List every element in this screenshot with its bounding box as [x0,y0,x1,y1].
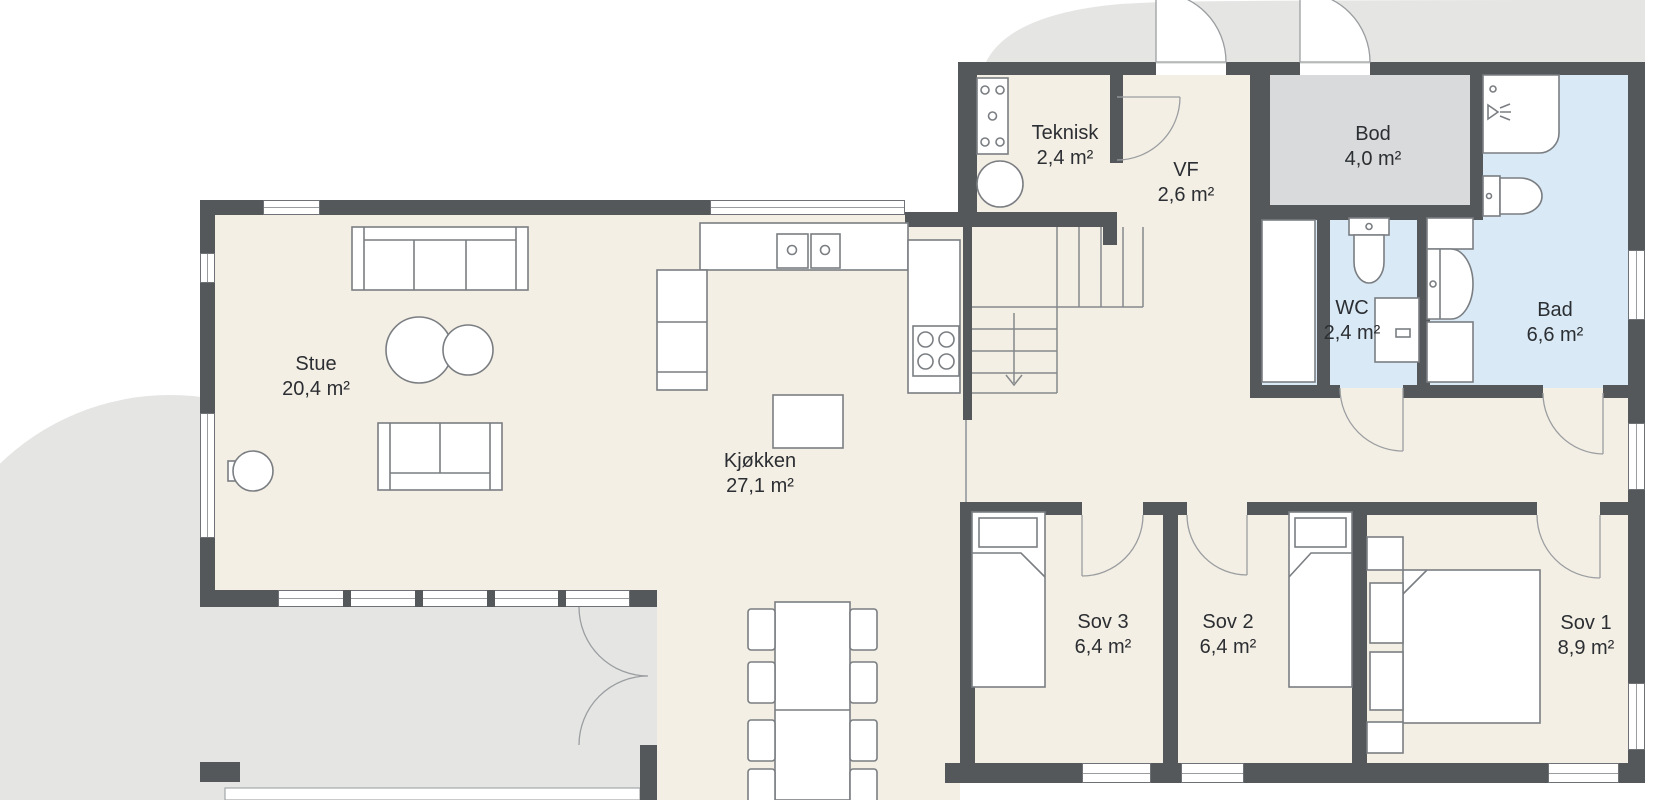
wall [1600,502,1628,515]
wall [640,745,657,800]
window-mullion [343,590,351,607]
window [1082,763,1151,783]
window [278,590,630,607]
room-area: 27,1 m² [726,474,794,499]
window [1548,763,1619,783]
stair-wall [963,212,972,420]
window [263,200,320,215]
wall [1250,385,1340,398]
terrace-pillar [200,762,240,782]
room-area: 2,4 m² [1324,321,1381,346]
wall [958,62,1156,75]
room-label-sov2: Sov 2 6,4 m² [1200,610,1257,660]
room-name: Sov 2 [1202,610,1253,635]
room-area: 8,9 m² [1558,636,1615,661]
bad-floor-lower [1417,210,1628,388]
wall [905,212,1117,227]
room-area: 6,4 m² [1075,635,1132,660]
wall [1110,75,1123,163]
dining-floor [657,590,960,800]
window [1628,250,1645,320]
room-area: 2,4 m² [1037,146,1094,171]
wall [1163,515,1178,763]
window [1628,423,1645,490]
room-area: 4,0 m² [1345,147,1402,172]
wall [960,502,1082,515]
stue-kjokken-floor [215,215,960,590]
room-name: Bad [1537,298,1573,323]
room-name: WC [1335,296,1368,321]
window-mullion [415,590,423,607]
window [1181,763,1244,783]
french-doors-arc [579,607,648,745]
room-area: 6,4 m² [1200,635,1257,660]
window [200,413,215,538]
room-label-bad: Bad 6,6 m² [1527,298,1584,348]
wall [960,515,975,763]
wall [1417,215,1430,388]
window [1628,683,1645,750]
room-label-teknisk: Teknisk 2,4 m² [1032,121,1099,171]
room-label-bod: Bod 4,0 m² [1345,122,1402,172]
room-label-sov1: Sov 1 8,9 m² [1558,611,1615,661]
room-area: 6,6 m² [1527,323,1584,348]
wall [1370,62,1645,75]
room-label-stue: Stue 20,4 m² [282,352,350,402]
wall [1352,515,1367,763]
room-name: Teknisk [1032,121,1099,146]
room-label-vf: VF 2,6 m² [1158,158,1215,208]
wall [1470,62,1483,215]
wall [1143,502,1187,515]
wall [1250,205,1483,220]
wall [958,75,977,212]
window-mullion [558,590,566,607]
room-label-sov3: Sov 3 6,4 m² [1075,610,1132,660]
window-mullion [487,590,495,607]
wall [1603,385,1628,398]
room-name: Stue [295,352,336,377]
bod-door-arc [1300,0,1370,62]
wall [1226,62,1300,75]
room-name: Sov 1 [1560,611,1611,636]
wall [945,763,1645,783]
wall [1250,75,1270,207]
window [710,200,905,215]
room-name: VF [1173,158,1199,183]
room-label-kjokken: Kjøkken 27,1 m² [724,449,796,499]
room-name: Kjøkken [724,449,796,474]
terrace-step [225,788,640,800]
room-divider-line [965,420,967,502]
wall [1250,220,1262,388]
room-label-wc: WC 2,4 m² [1324,296,1381,346]
floor-plan-canvas: Stue 20,4 m² Kjøkken 27,1 m² Teknisk 2,4… [0,0,1670,800]
wall [1247,502,1537,515]
bad-floor-upper [1483,75,1628,215]
room-area: 20,4 m² [282,377,350,402]
room-name: Sov 3 [1077,610,1128,635]
entry-door-arc [1156,0,1226,62]
window [200,253,215,283]
room-area: 2,6 m² [1158,183,1215,208]
wall [1403,385,1543,398]
room-name: Bod [1355,122,1391,147]
entry-porch [985,0,1645,64]
wall [1103,227,1117,245]
terrace [0,607,657,800]
